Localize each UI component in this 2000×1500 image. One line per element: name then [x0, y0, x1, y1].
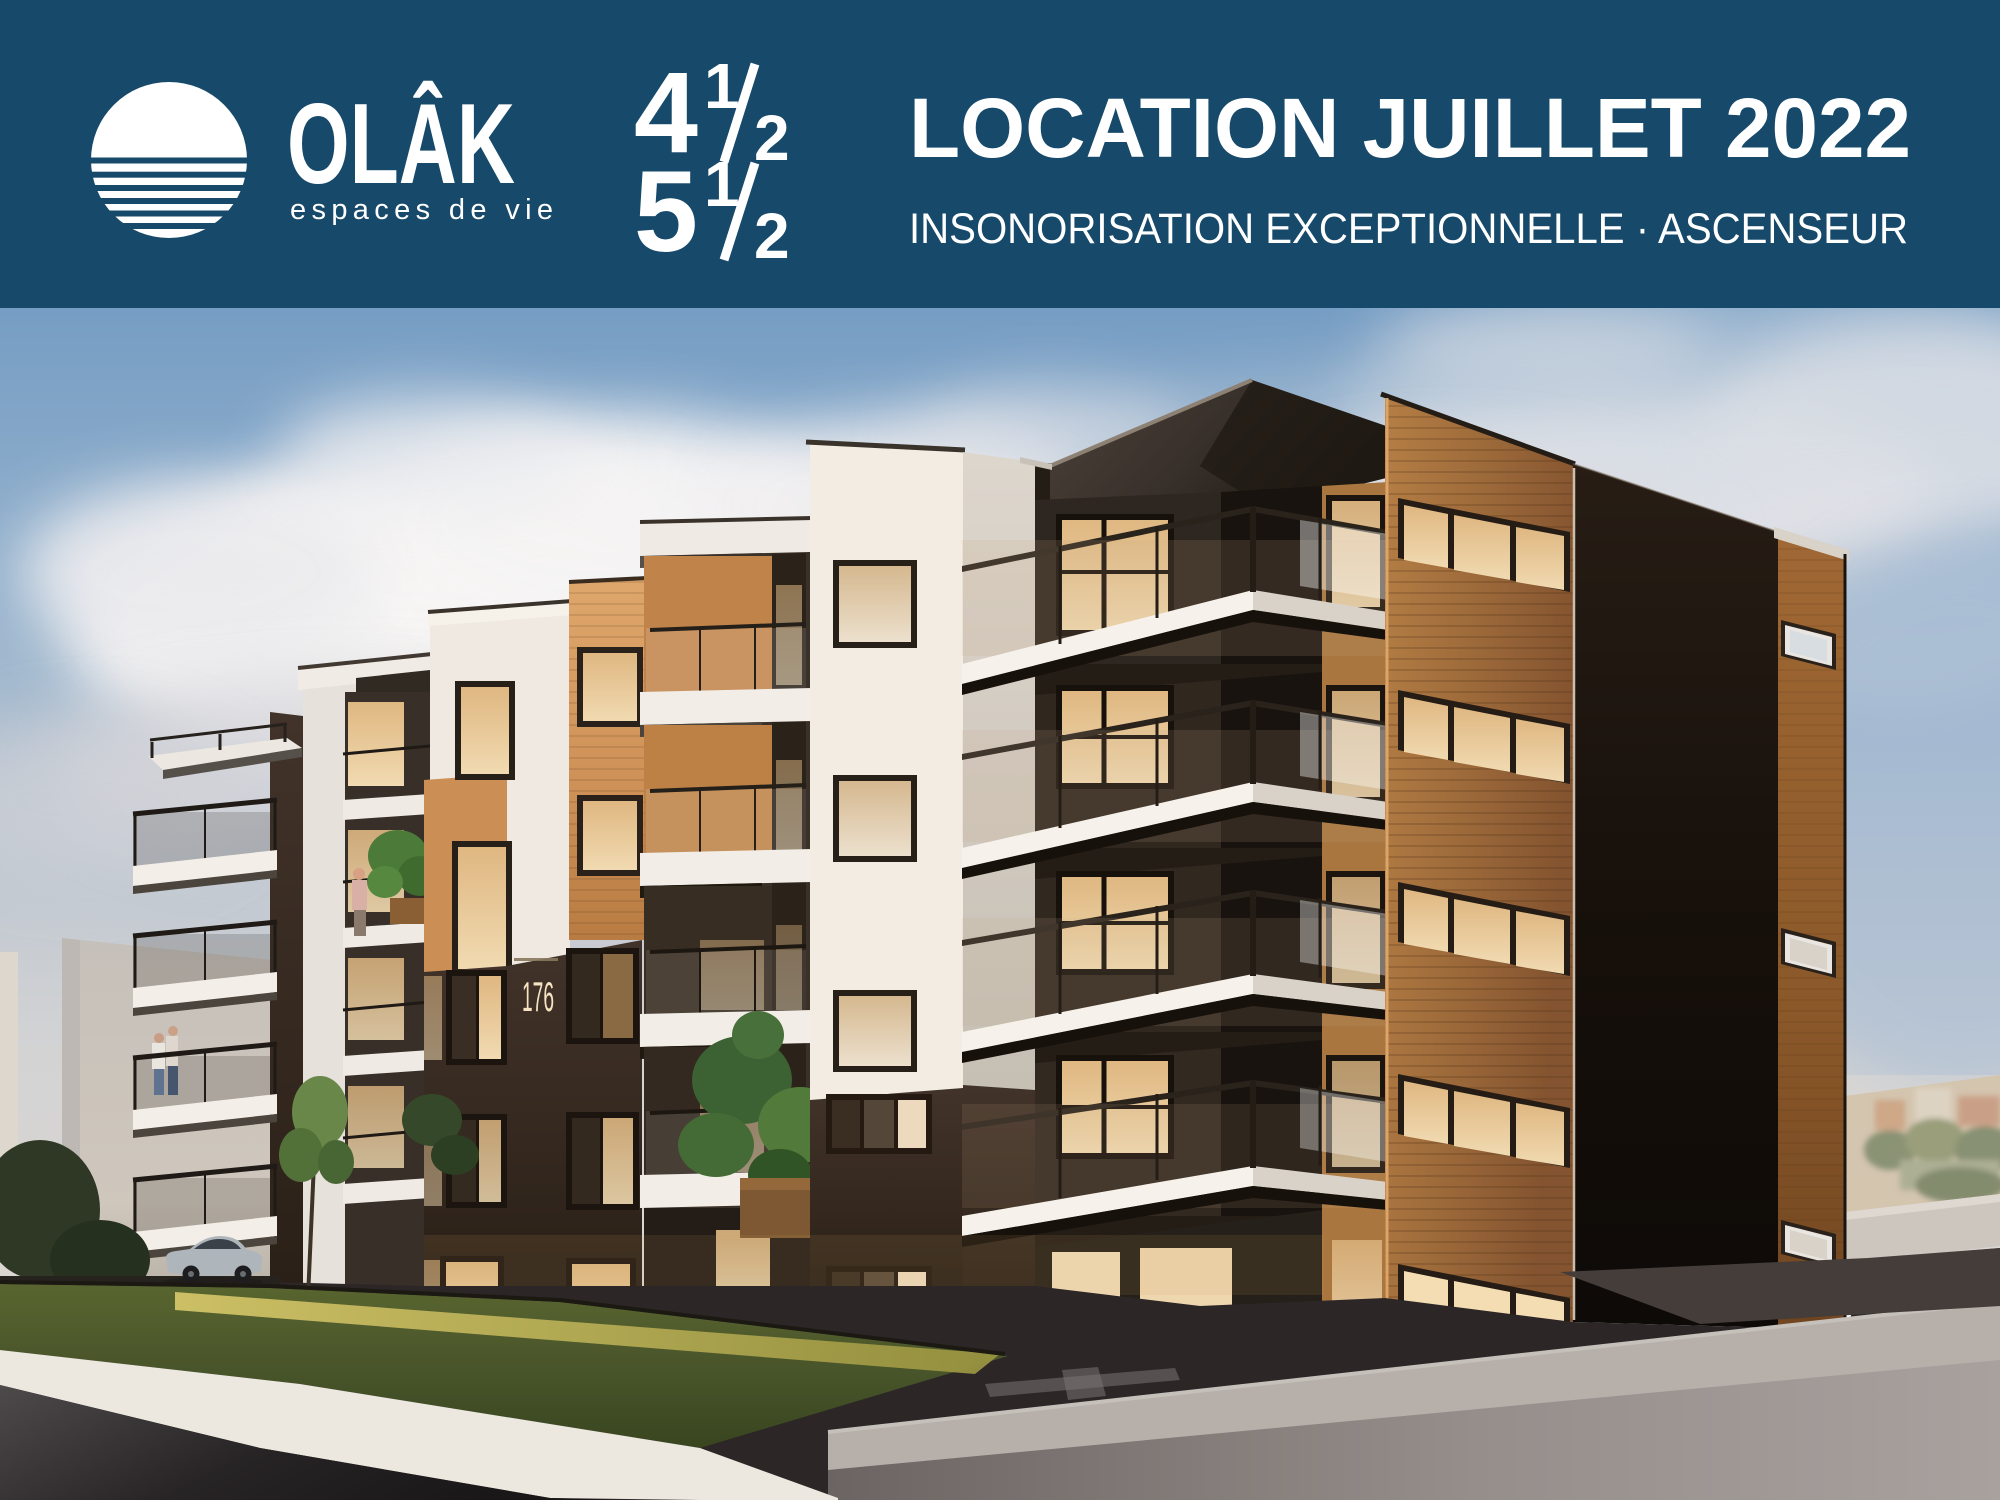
svg-text:1: 1 — [704, 50, 740, 122]
svg-text:2: 2 — [754, 200, 790, 272]
svg-text:LOCATION JUILLET 2022: LOCATION JUILLET 2022 — [909, 81, 1911, 175]
svg-text:INSONORISATION EXCEPTIONNELLE: INSONORISATION EXCEPTIONNELLE · ASCENSEU… — [909, 205, 1908, 253]
svg-text:2: 2 — [754, 102, 790, 174]
svg-text:OLÂK: OLÂK — [287, 81, 515, 208]
svg-text:176: 176 — [522, 973, 554, 1020]
svg-text:1: 1 — [704, 148, 740, 220]
svg-text:5: 5 — [634, 148, 698, 276]
